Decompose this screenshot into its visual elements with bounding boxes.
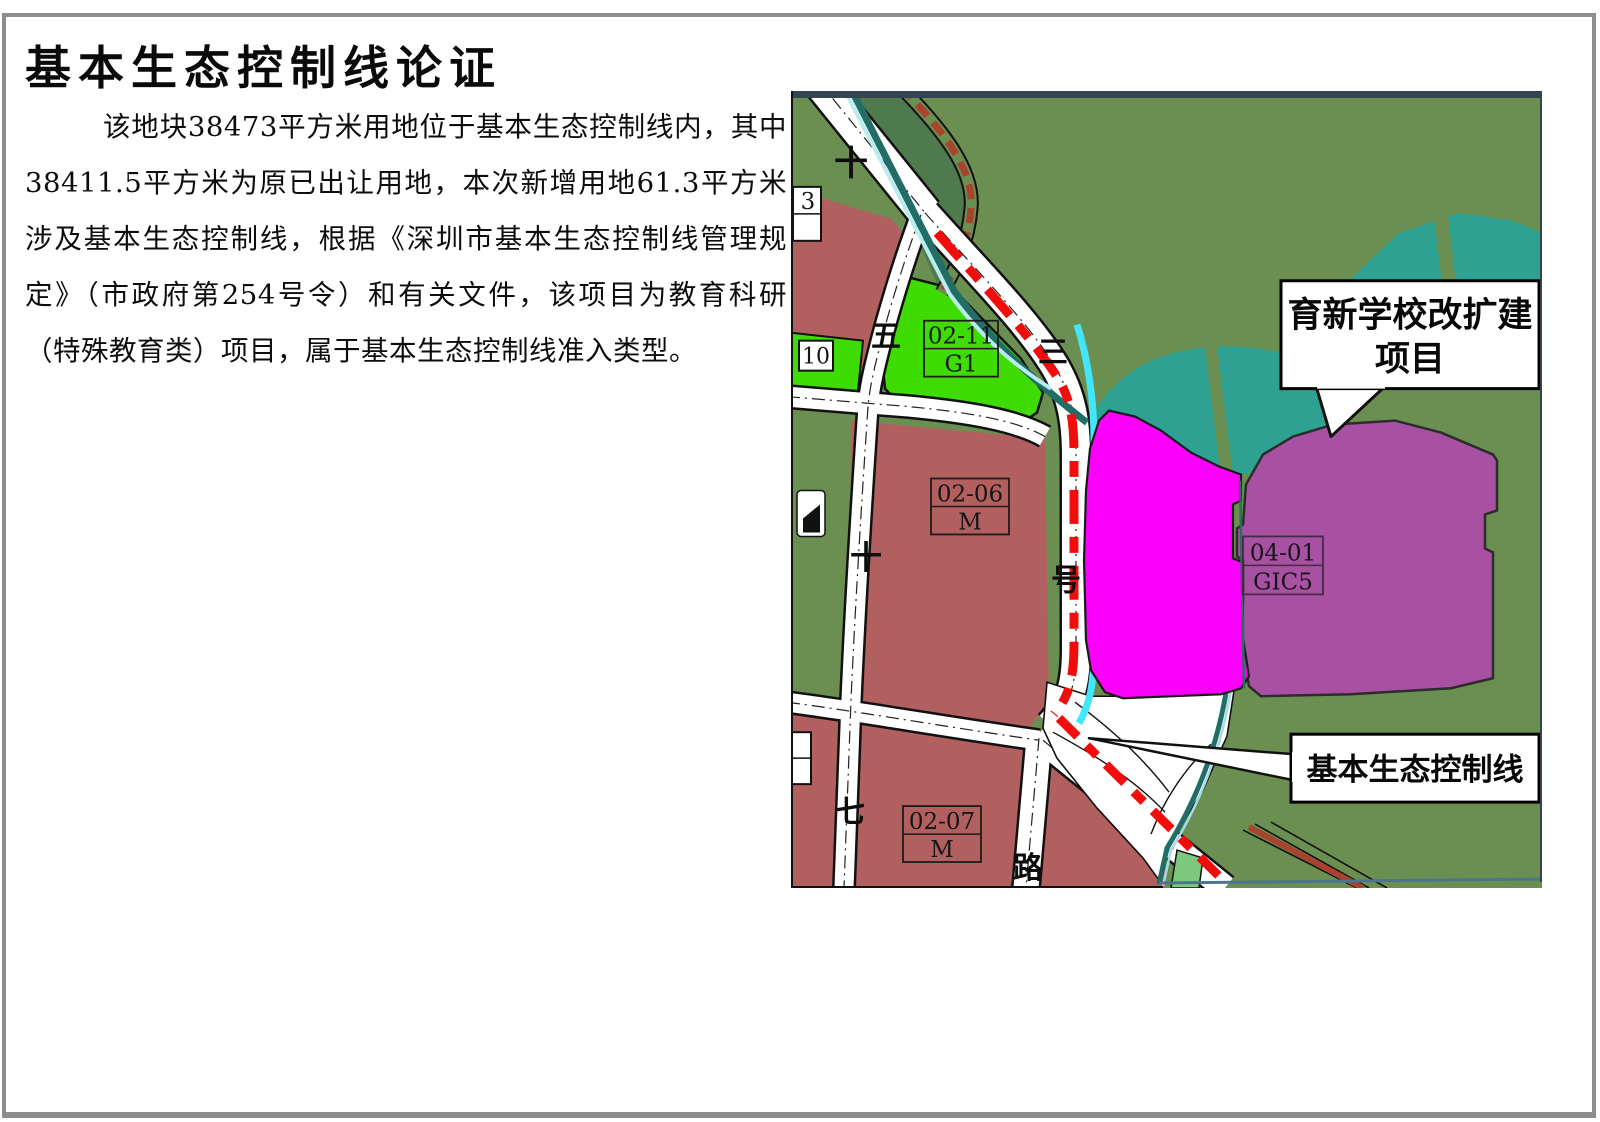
svg-text:10: 10: [802, 345, 830, 370]
svg-text:基本生态控制线: 基本生态控制线: [1307, 752, 1524, 787]
road-char-san: 三: [1038, 336, 1068, 371]
road-char-shi-top: 十: [834, 144, 868, 184]
page-title: 基本生态控制线论证: [25, 32, 765, 98]
building-marker-icon: [797, 490, 825, 536]
svg-text:04-01: 04-01: [1250, 540, 1316, 566]
svg-text:育新学校改扩建: 育新学校改扩建: [1288, 295, 1533, 335]
parcel-label-04-01: 04-01 GIC5: [1243, 536, 1323, 595]
map-frame-top: [791, 91, 1542, 98]
road-char-lu: 路: [1013, 851, 1044, 886]
partial-label-3: 3: [793, 187, 821, 241]
road-char-qi: 七: [835, 795, 865, 830]
svg-text:G1: G1: [945, 352, 978, 378]
svg-text:3: 3: [801, 189, 816, 215]
partial-label-10: 10: [799, 341, 833, 371]
road-char-shi-mid: 十: [850, 538, 882, 576]
svg-text:项目: 项目: [1375, 340, 1445, 379]
road-char-hao: 号: [1051, 563, 1081, 598]
partial-label-bottom: [791, 732, 811, 784]
road-char-wu: 五: [871, 320, 901, 355]
svg-text:02-07: 02-07: [909, 809, 975, 835]
map-svg: 02-11 G1 02-06 M 02-07 M 04-01 GIC5: [791, 91, 1542, 888]
svg-text:M: M: [958, 509, 982, 535]
svg-text:02-11: 02-11: [928, 324, 994, 350]
document-page: 基本生态控制线论证 该地块38473平方米用地位于基本生态控制线内，其中3841…: [0, 0, 1600, 1122]
svg-text:M: M: [930, 837, 954, 863]
svg-text:GIC5: GIC5: [1253, 569, 1313, 595]
body-paragraph: 该地块38473平方米用地位于基本生态控制线内，其中38411.5平方米为原已出…: [25, 99, 787, 379]
svg-text:02-06: 02-06: [937, 481, 1003, 507]
land-use-map: 02-11 G1 02-06 M 02-07 M 04-01 GIC5: [791, 91, 1542, 888]
